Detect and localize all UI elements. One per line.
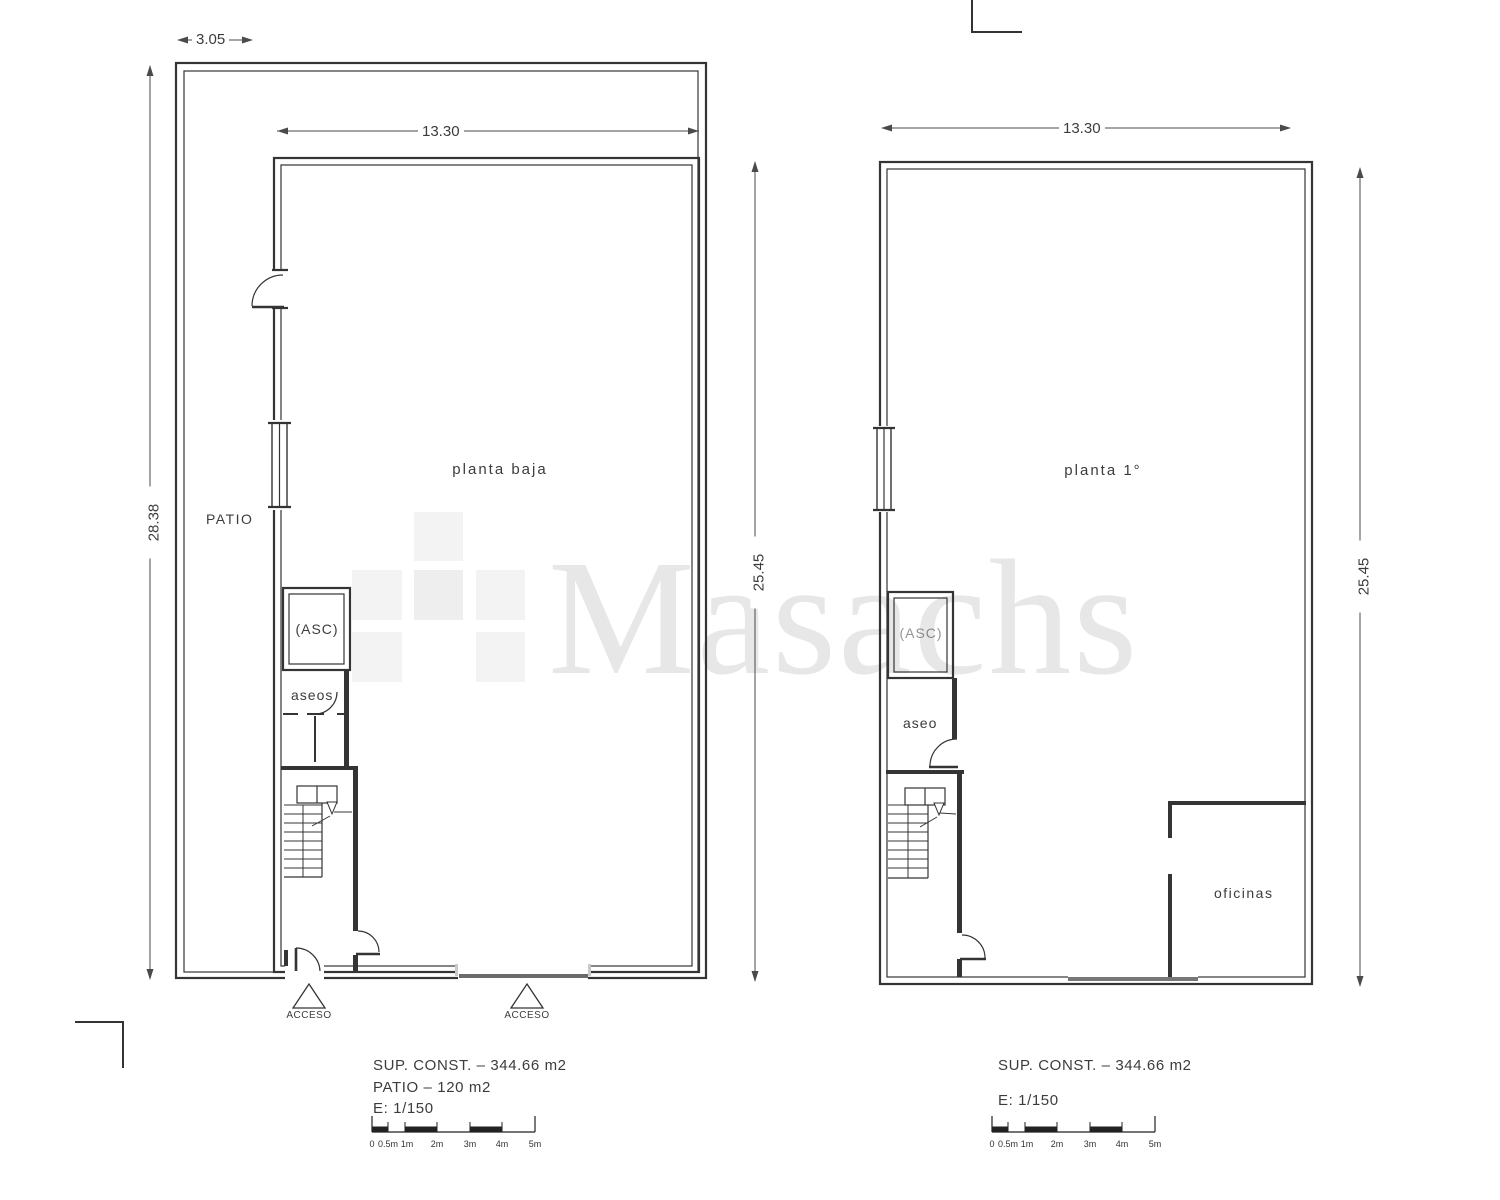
stairwell bbox=[281, 766, 358, 931]
dim-total-height-label: 28.38 bbox=[146, 487, 163, 559]
sheet-corner-mark-bottom-left bbox=[75, 1022, 123, 1068]
right-scale-2: 2m bbox=[1040, 1139, 1074, 1149]
left-scale-2: 2m bbox=[420, 1139, 454, 1149]
right-corridor-door bbox=[957, 935, 986, 977]
right-scale-5: 5m bbox=[1138, 1139, 1172, 1149]
elevator-label-right: (ASC) bbox=[892, 625, 950, 641]
left-plan-dimensions bbox=[147, 37, 759, 983]
dim-patio-width-label: 3.05 bbox=[192, 31, 229, 48]
left-info-sup-const: SUP. CONST. – 344.66 m2 bbox=[373, 1057, 567, 1074]
left-info-scale: E: 1/150 bbox=[373, 1100, 434, 1117]
patio-window bbox=[268, 423, 291, 507]
wc-label-right: aseo bbox=[903, 715, 937, 731]
acceso-triangle-icon-2 bbox=[511, 984, 543, 1008]
right-scale-1: 1m bbox=[1010, 1139, 1044, 1149]
acceso-label-1: ACCESO bbox=[282, 1010, 336, 1021]
sheet-corner-mark-top bbox=[972, 0, 1022, 32]
left-scale-1: 1m bbox=[390, 1139, 424, 1149]
right-bottom-threshold bbox=[1068, 977, 1198, 981]
floorplan-sheet: Masachs bbox=[0, 0, 1500, 1200]
dim-building-height-label-right: 25.45 bbox=[1356, 541, 1373, 613]
right-stair-direction-arrow-icon bbox=[920, 803, 956, 827]
dim-building-height-label-left: 25.45 bbox=[751, 537, 768, 609]
left-scale-3: 3m bbox=[453, 1139, 487, 1149]
left-scale-bar bbox=[372, 1116, 535, 1132]
right-stairwell bbox=[886, 770, 964, 933]
bottom-door1-opening bbox=[285, 963, 324, 980]
watermark-logo-icon bbox=[352, 512, 525, 682]
dim-building-width-label-right: 13.30 bbox=[1059, 120, 1105, 137]
acceso-triangle-icon-1 bbox=[293, 984, 325, 1008]
right-plan-building-walls bbox=[880, 162, 1312, 984]
wc-label-left: aseos bbox=[291, 687, 333, 703]
right-scale-4: 4m bbox=[1105, 1139, 1139, 1149]
right-plan-dimensions bbox=[881, 125, 1364, 988]
elevator-label-left: (ASC) bbox=[288, 621, 346, 637]
acceso-label-2: ACCESO bbox=[500, 1010, 554, 1021]
left-info-patio-area: PATIO – 120 m2 bbox=[373, 1079, 491, 1096]
dim-building-width-label-left: 13.30 bbox=[418, 123, 464, 140]
office-label: oficinas bbox=[1214, 885, 1273, 901]
right-scale-3: 3m bbox=[1073, 1139, 1107, 1149]
left-plan-building-walls bbox=[274, 158, 699, 972]
room-label-planta-baja: planta baja bbox=[440, 461, 560, 478]
room-label-patio: PATIO bbox=[206, 511, 253, 527]
right-info-scale: E: 1/150 bbox=[998, 1092, 1059, 1109]
right-info-sup-const: SUP. CONST. – 344.66 m2 bbox=[998, 1057, 1192, 1074]
wc-block bbox=[283, 670, 349, 767]
room-label-planta-1: planta 1° bbox=[1043, 462, 1163, 479]
left-scale-5: 5m bbox=[518, 1139, 552, 1149]
right-scale-bar bbox=[992, 1116, 1155, 1132]
left-scale-4: 4m bbox=[485, 1139, 519, 1149]
